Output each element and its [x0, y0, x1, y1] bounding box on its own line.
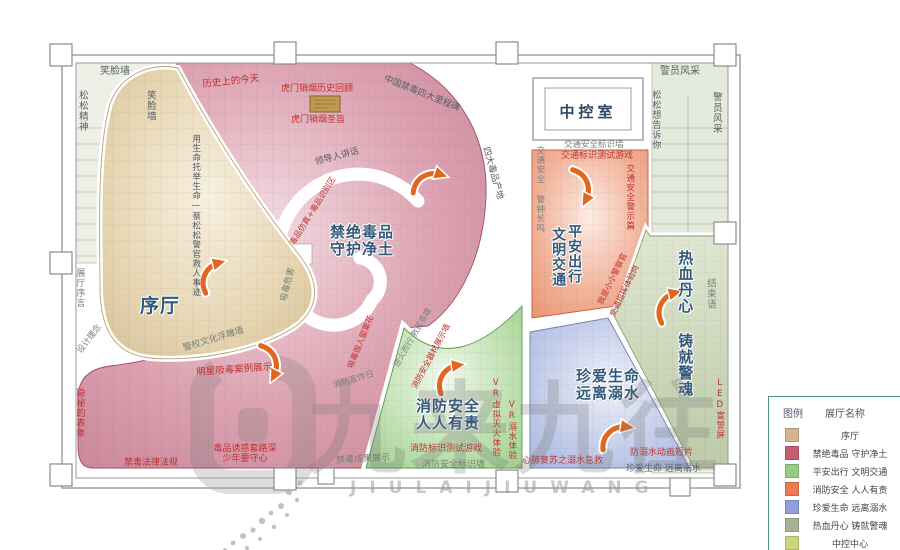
label-hidden-surface: 隐秘的表象 — [74, 388, 84, 438]
legend-swatch — [785, 464, 799, 478]
label-fire-zone-title-line2: 人人有责 — [408, 415, 488, 432]
label-drug-zone-title-line1: 禁绝毒品 — [322, 224, 402, 241]
label-water-zone-title-line1: 珍爱生命 — [566, 368, 650, 385]
label-smile-wall-top: 笑脸墙 — [100, 66, 130, 78]
label-control-room: 中控室 — [545, 101, 631, 122]
label-fire-zone-title: 消防安全 人人有责 — [408, 398, 488, 433]
label-police-style-top: 警员风采 — [660, 66, 700, 78]
label-officer-rescue-story: 用生命托举生命—蔡松松警官救人事迹 — [190, 134, 200, 297]
label-humen-history-review: 虎门销烟历史回顾 — [281, 84, 353, 94]
legend-header-symbol: 图例 — [783, 405, 803, 420]
label-water-zone-title: 珍爱生命 远离溺水 — [566, 368, 650, 403]
legend-row: 热血丹心 铸就警魂 — [773, 516, 900, 534]
label-traffic-zone-title-col1: 平安出行 — [566, 224, 582, 284]
plaque-icon — [310, 96, 340, 112]
label-drug-laws: 禁毒法律法规 — [124, 458, 178, 468]
label-traffic-sign-wall: 交通安全标识墙 — [564, 141, 624, 151]
label-traffic-sign-game: 交通标识测试游戏 — [561, 151, 633, 161]
label-traffic-zone-title-col2: 文明交通 — [550, 227, 566, 287]
label-police-spirit-title: 热血丹心 铸就警魂 — [676, 250, 693, 435]
legend-swatch — [785, 428, 799, 442]
label-humen-edict: 虎门销烟圣旨 — [291, 115, 345, 125]
label-fire-sign-wall: 消防安全标识墙 — [422, 460, 485, 470]
legend-label: 中控中心 — [799, 537, 900, 550]
legend-label: 热血丹心 铸就警魂 — [799, 519, 900, 532]
label-drug-zone-title-line2: 守护净土 — [322, 241, 402, 258]
label-anti-drowning-animation: 防溺水动画短片 — [630, 448, 693, 458]
legend-row: 序厅 — [773, 426, 900, 444]
label-traffic-warning-chapter: 交通安全警示篇 — [624, 164, 634, 231]
legend-row: 禁绝毒品 守护净土 — [773, 444, 900, 462]
label-cpr-rescue: 心肺复苏之溺水急救 — [522, 456, 603, 466]
label-fire-zone-title-line1: 消防安全 — [408, 398, 488, 415]
label-fire-sign-game: 消防标识测试游戏 — [410, 444, 482, 454]
label-vr-fire-experience: VR虚拟灭火体验 — [490, 378, 500, 457]
legend-label: 消防安全 人人有责 — [799, 483, 900, 496]
legend-swatch — [785, 446, 799, 460]
label-traffic-warning-bell: 交通安全 警钟长鸣 — [534, 146, 544, 233]
label-water-zone-title-line2: 远离溺水 — [566, 385, 650, 402]
legend-label: 珍爱生命 远离溺水 — [799, 501, 900, 514]
label-prologue-hall: 序厅 — [140, 296, 180, 318]
label-smile-wall-side: 笑脸墙 — [144, 90, 155, 122]
label-water-slogan: 珍爱生命 远离溺水 — [626, 464, 701, 474]
legend-swatch — [785, 482, 799, 496]
legend-label: 序厅 — [799, 429, 900, 442]
label-drug-zone-title: 禁绝毒品 守护净土 — [322, 224, 402, 259]
legend-header-name: 展厅名称 — [825, 405, 865, 420]
label-police-style-side: 警员风采 — [710, 92, 721, 134]
label-drug-temptation: 毒品诱惑套路深 少年要守心 — [204, 444, 286, 465]
legend-header: 图例 展厅名称 — [773, 405, 900, 420]
legend-swatch — [785, 518, 799, 532]
legend-row: 平安出行 文明交通 — [773, 462, 900, 480]
label-conclusion: 结束语 — [704, 278, 715, 310]
legend-swatch — [785, 500, 799, 514]
legend-row: 珍爱生命 远离溺水 — [773, 498, 900, 516]
label-hall-preface: 展厅序言 — [74, 268, 84, 308]
legend-label: 禁绝毒品 守护净土 — [799, 447, 900, 460]
label-songsong-spirit: 松松精神 — [76, 90, 87, 132]
label-drug-temptation-line1: 毒品诱惑套路深 — [204, 444, 286, 454]
label-drug-temptation-line2: 少年要守心 — [204, 454, 286, 464]
legend-label: 平安出行 文明交通 — [799, 465, 900, 478]
legend-row: 消防安全 人人有责 — [773, 480, 900, 498]
legend-swatch — [785, 536, 799, 550]
label-led-oath-screen: LED宣誓屏 — [714, 378, 724, 440]
legend: 图例 展厅名称 序厅 禁绝毒品 守护净土 平安出行 文明交通 消防安全 人人有责… — [768, 396, 900, 550]
floor-plan-canvas: 笑脸墙 松松精神 笑脸墙 警员风采 松松想告诉你 警员风采 结束语 LED宣誓屏… — [0, 0, 900, 550]
label-songsong-tells-you: 松松想告诉你 — [650, 90, 660, 150]
legend-row: 中控中心 — [773, 534, 900, 550]
label-vr-drowning-experience: VR溺水体验 — [506, 400, 516, 460]
